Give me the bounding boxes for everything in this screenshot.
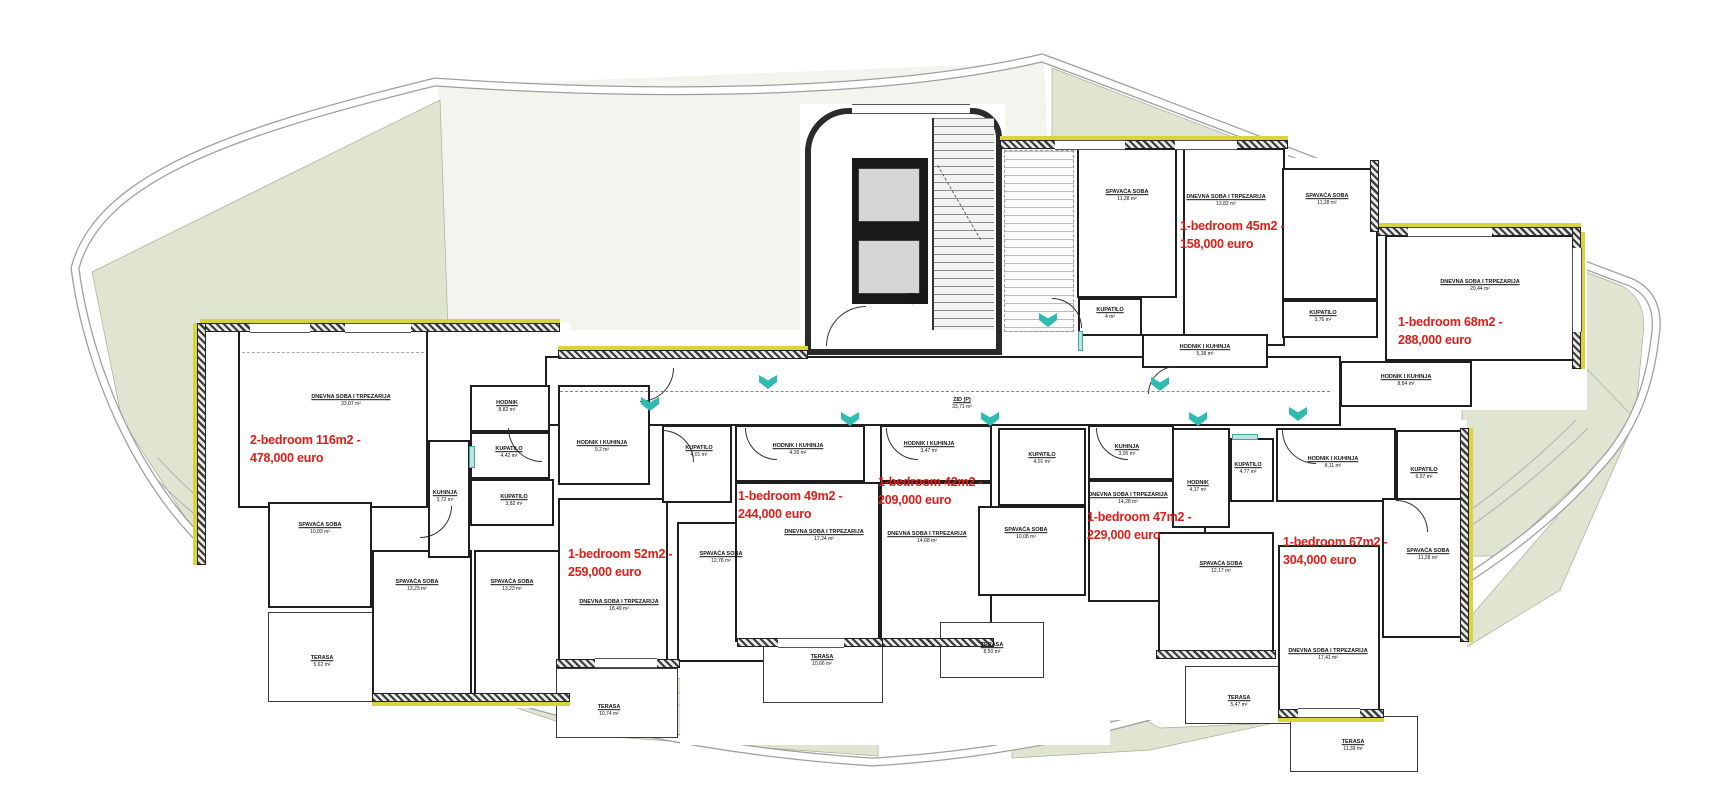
room-label: DNEVNA SOBA I TRPEZARIJA13,82 m² bbox=[1186, 194, 1265, 208]
price-line2: 478,000 euro bbox=[250, 449, 361, 467]
window bbox=[1408, 227, 1492, 237]
corridor-centerline bbox=[560, 391, 1330, 392]
price-line1: 1-bedroom 49m2 - bbox=[738, 487, 842, 505]
room-label: SPAVAĆA SOBA13,23 m² bbox=[491, 579, 534, 593]
price-line1: 1-bedroom 67m2 - bbox=[1283, 533, 1387, 551]
room-name: DNEVNA SOBA I TRPEZARIJA bbox=[1288, 648, 1367, 655]
room-area: 11,28 m² bbox=[1106, 196, 1149, 203]
room-area: 13,23 m² bbox=[491, 586, 534, 593]
room-name: KUPATILO bbox=[500, 494, 527, 501]
room-outline-bedroom bbox=[1282, 168, 1378, 300]
room-area: 28,21 m² bbox=[906, 300, 926, 307]
room-name: KUHINJA bbox=[1115, 444, 1139, 451]
room-label: KUPATILO4 m² bbox=[1096, 307, 1123, 321]
room-area: 11,28 m² bbox=[1306, 200, 1349, 207]
window bbox=[778, 638, 844, 648]
exterior-wall bbox=[1156, 650, 1276, 659]
room-label: SPAVAĆA SOBA12,17 m² bbox=[1200, 561, 1243, 575]
room-area: 8,84 m² bbox=[1381, 381, 1432, 388]
room-label: TERASA8,50 m² bbox=[981, 642, 1004, 656]
room-name: SPAVAĆA SOBA bbox=[1005, 527, 1048, 534]
room-name: ZID (P) bbox=[906, 293, 926, 300]
room-name: TERASA bbox=[981, 642, 1004, 649]
window bbox=[1572, 248, 1582, 332]
price-line2: 304,000 euro bbox=[1283, 551, 1387, 569]
room-name: SPAVAĆA SOBA bbox=[1407, 548, 1450, 555]
price-line1: 1-bedroom 42m2 - bbox=[878, 473, 982, 491]
room-area: 4,42 m² bbox=[495, 453, 522, 460]
room-name: DNEVNA SOBA I TRPEZARIJA bbox=[1440, 279, 1519, 286]
price-line2: 209,000 euro bbox=[878, 491, 982, 509]
room-label: KUPATILO6,97 m² bbox=[1410, 467, 1437, 481]
room-label: HODNIK8,82 m² bbox=[496, 400, 518, 414]
room-name: TERASA bbox=[811, 654, 834, 661]
exterior-wall bbox=[197, 323, 206, 565]
room-label: DNEVNA SOBA I TRPEZARIJA14,28 m² bbox=[1088, 492, 1167, 506]
apartment-price-label: 1-bedroom 68m2 -288,000 euro bbox=[1398, 313, 1502, 349]
room-area: 13,23 m² bbox=[396, 586, 439, 593]
window-sill bbox=[1232, 434, 1258, 440]
room-name: DNEVNA SOBA I TRPEZARIJA bbox=[311, 394, 390, 401]
room-area: 17,41 m² bbox=[1288, 655, 1367, 662]
room-label: KUPATILO4,77 m² bbox=[1234, 462, 1261, 476]
room-name: HODNIK bbox=[1187, 480, 1209, 487]
room-label: SPAVAĆA SOBA10,83 m² bbox=[299, 522, 342, 536]
room-name: TERASA bbox=[1342, 739, 1365, 746]
room-label: SPAVAĆA SOBA10,08 m² bbox=[1005, 527, 1048, 541]
room-label: DNEVNA SOBA I TRPEZARIJA33,07 m² bbox=[311, 394, 390, 408]
room-name: SPAVAĆA SOBA bbox=[1306, 193, 1349, 200]
room-label: ZID (P)33,71 m² bbox=[952, 397, 972, 411]
room-area: 10,66 m² bbox=[811, 661, 834, 668]
room-area: 4,77 m² bbox=[1234, 469, 1261, 476]
room-name: DNEVNA SOBA I TRPEZARIJA bbox=[579, 599, 658, 606]
apartment-price-label: 1-bedroom 67m2 -304,000 euro bbox=[1283, 533, 1387, 569]
room-name: SPAVAĆA SOBA bbox=[1106, 189, 1149, 196]
room-area: 12,17 m² bbox=[1200, 568, 1243, 575]
price-line2: 229,000 euro bbox=[1087, 526, 1191, 544]
room-area: 4,26 m² bbox=[773, 450, 824, 457]
room-label: HODNIK4,17 m² bbox=[1187, 480, 1209, 494]
room-name: DNEVNA SOBA I TRPEZARIJA bbox=[784, 529, 863, 536]
room-name: HODNIK I KUHINJA bbox=[577, 440, 628, 447]
room-area: 10,08 m² bbox=[1005, 534, 1048, 541]
room-area: 20,44 m² bbox=[1440, 286, 1519, 293]
room-area: 10,74 m² bbox=[598, 711, 621, 718]
room-label: HODNIK I KUHINJA3,47 m² bbox=[904, 441, 955, 455]
room-area: 10,83 m² bbox=[299, 529, 342, 536]
exterior-wall bbox=[1000, 140, 1288, 149]
room-name: HODNIK I KUHINJA bbox=[773, 443, 824, 450]
room-name: SPAVAĆA SOBA bbox=[1200, 561, 1243, 568]
room-name: SPAVAĆA SOBA bbox=[396, 579, 439, 586]
window bbox=[1298, 708, 1360, 718]
insulation-accent bbox=[558, 346, 808, 350]
room-label: HODNIK I KUHINJA5,38 m² bbox=[1180, 344, 1231, 358]
room-label: KUPATILO3,82 m² bbox=[500, 494, 527, 508]
room-outline-living bbox=[1278, 545, 1380, 713]
room-outline-bedroom bbox=[372, 550, 472, 697]
window bbox=[852, 104, 970, 114]
room-outline-bedroom bbox=[1077, 148, 1177, 298]
room-label: ZID (P)28,21 m² bbox=[906, 293, 926, 307]
window bbox=[1175, 140, 1237, 150]
price-line1: 1-bedroom 52m2 - bbox=[568, 545, 672, 563]
window bbox=[345, 323, 411, 333]
room-label: HODNIK I KUHINJA8,11 m² bbox=[1308, 456, 1359, 470]
apartment-price-label: 1-bedroom 45m2 -158,000 euro bbox=[1180, 217, 1284, 253]
room-area: 3,76 m² bbox=[1309, 317, 1336, 324]
room-area: 14,28 m² bbox=[1088, 499, 1167, 506]
apartment-price-label: 1-bedroom 49m2 -244,000 euro bbox=[738, 487, 842, 523]
exterior-wall bbox=[1370, 160, 1379, 232]
room-name: KUPATILO bbox=[1234, 462, 1261, 469]
room-area: 33,71 m² bbox=[952, 404, 972, 411]
room-name: KUPATILO bbox=[1309, 310, 1336, 317]
room-outline-bedroom bbox=[978, 506, 1086, 596]
room-label: HODNIK I KUHINJA4,26 m² bbox=[773, 443, 824, 457]
exterior-wall bbox=[372, 693, 570, 702]
terrace-outline bbox=[556, 668, 678, 738]
room-label: DNEVNA SOBA I TRPEZARIJA17,41 m² bbox=[1288, 648, 1367, 662]
room-area: 5,47 m² bbox=[1228, 702, 1251, 709]
insulation-accent bbox=[1278, 718, 1384, 722]
room-area: 11,39 m² bbox=[1342, 746, 1365, 753]
price-line2: 244,000 euro bbox=[738, 505, 842, 523]
room-area: 5,62 m² bbox=[311, 662, 334, 669]
exterior-wall bbox=[558, 350, 808, 359]
room-label: SPAVAĆA SOBA11,28 m² bbox=[1106, 189, 1149, 203]
price-line1: 1-bedroom 45m2 - bbox=[1180, 217, 1284, 235]
room-outline-living bbox=[238, 330, 428, 508]
room-label: DNEVNA SOBA I TRPEZARIJA14,68 m² bbox=[887, 531, 966, 545]
room-area: 4,17 m² bbox=[1187, 487, 1209, 494]
window-sill bbox=[469, 446, 475, 468]
room-area: 11,28 m² bbox=[1407, 555, 1450, 562]
room-name: KUPATILO bbox=[1028, 452, 1055, 459]
window bbox=[250, 323, 310, 333]
room-area: 4,01 m² bbox=[685, 452, 712, 459]
room-area: 12,78 m² bbox=[700, 558, 743, 565]
room-outline-bathroom bbox=[998, 428, 1086, 506]
room-area: 3,47 m² bbox=[904, 448, 955, 455]
insulation-accent bbox=[193, 323, 197, 565]
price-line2: 158,000 euro bbox=[1180, 235, 1284, 253]
room-name: ZID (P) bbox=[952, 397, 972, 404]
room-area: 13,82 m² bbox=[1186, 201, 1265, 208]
room-label: KUPATILO4,42 m² bbox=[495, 446, 522, 460]
room-label: TERASA11,39 m² bbox=[1342, 739, 1365, 753]
room-area: 17,24 m² bbox=[784, 536, 863, 543]
room-label: TERASA5,47 m² bbox=[1228, 695, 1251, 709]
room-area: 8,11 m² bbox=[1308, 463, 1359, 470]
room-name: HODNIK I KUHINJA bbox=[904, 441, 955, 448]
room-area: 6,97 m² bbox=[1410, 474, 1437, 481]
room-area: 8,50 m² bbox=[981, 649, 1004, 656]
room-area: 3,82 m² bbox=[500, 501, 527, 508]
apartment-price-label: 1-bedroom 52m2 -259,000 euro bbox=[568, 545, 672, 581]
room-label: DNEVNA SOBA I TRPEZARIJA20,44 m² bbox=[1440, 279, 1519, 293]
room-name: HODNIK I KUHINJA bbox=[1180, 344, 1231, 351]
exterior-wall bbox=[1460, 428, 1469, 642]
room-label: TERASA10,74 m² bbox=[598, 704, 621, 718]
room-name: KUPATILO bbox=[685, 445, 712, 452]
room-name: SPAVAĆA SOBA bbox=[700, 551, 743, 558]
room-area: 14,68 m² bbox=[887, 538, 966, 545]
room-name: SPAVAĆA SOBA bbox=[299, 522, 342, 529]
room-label: HODNIK I KUHINJA9,2 m² bbox=[577, 440, 628, 454]
room-name: HODNIK I KUHINJA bbox=[1308, 456, 1359, 463]
room-name: TERASA bbox=[311, 655, 334, 662]
room-name: TERASA bbox=[598, 704, 621, 711]
room-area: 8,82 m² bbox=[496, 407, 518, 414]
room-name: KUPATILO bbox=[1410, 467, 1437, 474]
room-name: DNEVNA SOBA I TRPEZARIJA bbox=[887, 531, 966, 538]
room-outline-hall-kitchen bbox=[558, 385, 650, 485]
ceiling-dash-line bbox=[242, 352, 424, 353]
floor-plan: DNEVNA SOBA I TRPEZARIJA33,07 m² SPAVAĆA… bbox=[0, 0, 1734, 800]
room-name: DNEVNA SOBA I TRPEZARIJA bbox=[1088, 492, 1167, 499]
exterior-wall bbox=[882, 638, 994, 647]
price-line1: 1-bedroom 68m2 - bbox=[1398, 313, 1502, 331]
room-area: 3,72 m² bbox=[433, 497, 457, 504]
room-outline-bedroom bbox=[268, 502, 372, 608]
room-outline-bedroom bbox=[1158, 532, 1274, 654]
room-label: KUPATILO3,76 m² bbox=[1309, 310, 1336, 324]
room-area: 3,05 m² bbox=[1115, 451, 1139, 458]
room-area: 4 m² bbox=[1096, 314, 1123, 321]
room-label: DNEVNA SOBA I TRPEZARIJA18,49 m² bbox=[579, 599, 658, 613]
room-label: KUHINJA3,05 m² bbox=[1115, 444, 1139, 458]
room-area: 5,38 m² bbox=[1180, 351, 1231, 358]
elevator-cabin bbox=[858, 240, 920, 294]
apartment-price-label: 1-bedroom 42m2 -209,000 euro bbox=[878, 473, 982, 509]
room-label: KUPATILO4,01 m² bbox=[1028, 452, 1055, 466]
room-name: KUPATILO bbox=[495, 446, 522, 453]
room-name: DNEVNA SOBA I TRPEZARIJA bbox=[1186, 194, 1265, 201]
room-name: SPAVAĆA SOBA bbox=[491, 579, 534, 586]
insulation-accent bbox=[1469, 428, 1473, 642]
room-name: KUPATILO bbox=[1096, 307, 1123, 314]
room-label: KUHINJA3,72 m² bbox=[433, 490, 457, 504]
room-name: KUHINJA bbox=[433, 490, 457, 497]
room-area: 18,49 m² bbox=[579, 606, 658, 613]
room-name: HODNIK I KUHINJA bbox=[1381, 374, 1432, 381]
room-label: HODNIK I KUHINJA8,84 m² bbox=[1381, 374, 1432, 388]
price-line1: 2-bedroom 116m2 - bbox=[250, 431, 361, 449]
room-area: 4,01 m² bbox=[1028, 459, 1055, 466]
room-label: DNEVNA SOBA I TRPEZARIJA17,24 m² bbox=[784, 529, 863, 543]
room-name: TERASA bbox=[1228, 695, 1251, 702]
window-sill bbox=[1078, 331, 1083, 351]
elevator-cabin bbox=[858, 168, 920, 222]
room-label: SPAVAĆA SOBA12,78 m² bbox=[700, 551, 743, 565]
stairs bbox=[932, 118, 994, 330]
window bbox=[595, 658, 657, 668]
room-label: SPAVAĆA SOBA11,28 m² bbox=[1306, 193, 1349, 207]
room-name: HODNIK bbox=[496, 400, 518, 407]
room-area: 33,07 m² bbox=[311, 401, 390, 408]
window bbox=[1055, 140, 1125, 150]
insulation-accent bbox=[372, 702, 570, 706]
room-label: KUPATILO4,01 m² bbox=[685, 445, 712, 459]
apartment-price-label: 2-bedroom 116m2 -478,000 euro bbox=[250, 431, 361, 467]
room-label: TERASA5,62 m² bbox=[311, 655, 334, 669]
price-line2: 259,000 euro bbox=[568, 563, 672, 581]
apartment-price-label: 1-bedroom 47m2 -229,000 euro bbox=[1087, 508, 1191, 544]
room-label: SPAVAĆA SOBA11,28 m² bbox=[1407, 548, 1450, 562]
price-line2: 288,000 euro bbox=[1398, 331, 1502, 349]
room-area: 9,2 m² bbox=[577, 447, 628, 454]
insulation-accent bbox=[1000, 136, 1288, 140]
price-line1: 1-bedroom 47m2 - bbox=[1087, 508, 1191, 526]
room-label: TERASA10,66 m² bbox=[811, 654, 834, 668]
room-label: SPAVAĆA SOBA13,23 m² bbox=[396, 579, 439, 593]
